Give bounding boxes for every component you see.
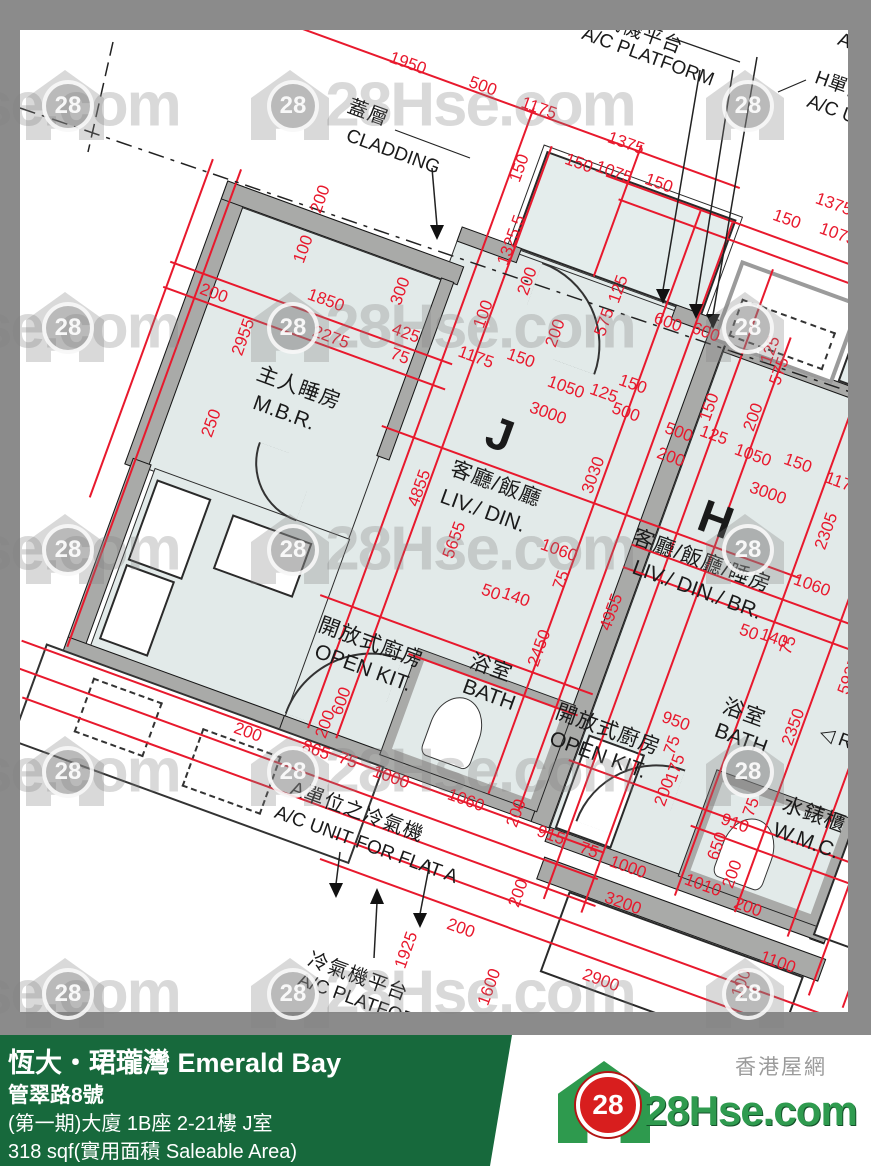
dim-label: 100 bbox=[290, 233, 316, 265]
floorplan-screenshot: 冷氣機平台A/C PLATFORM蓋層CLADDINGH單位A/C UNA/19… bbox=[0, 0, 871, 1166]
dim-label: 140 bbox=[500, 584, 532, 610]
dim-label: 150 bbox=[782, 450, 814, 476]
dim-label: 1950 bbox=[387, 49, 428, 78]
dim-label: 2305 bbox=[812, 510, 841, 551]
frame-bottom bbox=[0, 1012, 871, 1036]
dim-label: 3030 bbox=[579, 454, 608, 495]
dim-label: 200 bbox=[651, 776, 677, 808]
dim-label: 575 bbox=[591, 306, 617, 338]
dim-label: 1050 bbox=[732, 441, 773, 470]
dim-label: 950 bbox=[660, 708, 692, 734]
dim-label: 1325.5 bbox=[494, 213, 528, 268]
dim-label: 3000 bbox=[747, 479, 788, 508]
dim-label: 2900 bbox=[580, 966, 621, 995]
dim-label: 1060 bbox=[538, 536, 579, 565]
unit-letter: H bbox=[693, 492, 740, 547]
logo-28-badge: 28 bbox=[576, 1073, 640, 1137]
plan-labels: 冷氣機平台A/C PLATFORM蓋層CLADDINGH單位A/C UNA/19… bbox=[0, 0, 871, 1040]
logo-tagline: 香港屋網 bbox=[735, 1051, 827, 1081]
dim-label: 1010 bbox=[682, 871, 723, 900]
dim-label: 1060 bbox=[445, 786, 486, 815]
dim-label: 200 bbox=[740, 401, 766, 433]
dim-label: 150 bbox=[563, 150, 595, 176]
dim-label: 3200 bbox=[602, 889, 643, 918]
property-area: 318 sqf(實用面積 Saleable Area) bbox=[8, 1135, 297, 1164]
dim-label: 200 bbox=[445, 915, 477, 941]
dim-label: 200 bbox=[542, 317, 568, 349]
dim-label: 200 bbox=[307, 183, 333, 215]
dim-label: 865 bbox=[300, 737, 332, 763]
dim-label: 250 bbox=[198, 407, 224, 439]
frame-right bbox=[848, 0, 871, 1036]
footer-bar: 恆大・珺瓏灣 Emerald Bay 管翠路8號 (第一期)大廈 1B座 2-2… bbox=[0, 1035, 871, 1166]
site-logo: 28 28Hse.com 香港屋網 bbox=[540, 1035, 871, 1166]
dim-label: 125 bbox=[605, 273, 631, 305]
dim-label: 500 bbox=[610, 399, 642, 425]
dim-label: 425 bbox=[390, 320, 422, 346]
dim-label: 100 bbox=[470, 298, 496, 330]
dim-label: 200 bbox=[719, 858, 745, 890]
dim-label: 75 bbox=[388, 345, 412, 367]
annotation-label-en: CLADDING bbox=[344, 126, 443, 177]
logo-name: 28Hse.com bbox=[644, 1087, 857, 1135]
dim-label: 500 bbox=[663, 419, 695, 445]
dim-label: 5655 bbox=[440, 519, 469, 560]
annotation-label-zh: 蓋層 bbox=[345, 96, 391, 129]
dim-label: 3000 bbox=[527, 399, 568, 428]
dim-label: 1850 bbox=[305, 286, 346, 315]
dim-label: 200 bbox=[232, 719, 264, 745]
dim-label: 75 bbox=[336, 749, 360, 771]
dim-label: 4955 bbox=[597, 591, 626, 632]
dim-label: 200 bbox=[514, 265, 540, 297]
dim-label: 75 bbox=[777, 633, 799, 657]
dim-label: 915 bbox=[535, 822, 567, 848]
dim-label: 1100 bbox=[758, 948, 798, 976]
dim-label: 75 bbox=[550, 568, 572, 592]
dim-label: 200 bbox=[503, 797, 529, 829]
dim-label: 1175 bbox=[519, 94, 559, 122]
dim-label: 150 bbox=[617, 371, 649, 397]
dim-label: 150 bbox=[643, 170, 675, 196]
dim-label: 200 bbox=[732, 894, 764, 920]
property-address: 管翠路8號 bbox=[8, 1079, 104, 1109]
dim-label: 1925 bbox=[392, 929, 421, 970]
dim-label: 200 bbox=[505, 877, 531, 909]
dim-label: 1175 bbox=[456, 343, 496, 371]
unit-letter: J bbox=[480, 408, 520, 460]
dim-label: 200 bbox=[198, 280, 230, 306]
property-unit: (第一期)大廈 1B座 2-21樓 J室 bbox=[8, 1107, 272, 1136]
property-title: 恆大・珺瓏灣 Emerald Bay bbox=[8, 1041, 341, 1080]
dim-label: 2350 bbox=[779, 706, 808, 747]
dim-label: 4855 bbox=[405, 467, 434, 508]
dim-label: 125 bbox=[698, 422, 730, 448]
frame-top bbox=[0, 0, 871, 30]
dim-label: 1000 bbox=[370, 763, 411, 792]
dim-label: 600 bbox=[652, 309, 684, 335]
dim-label: 1060 bbox=[791, 571, 832, 600]
dim-label: 150 bbox=[506, 152, 532, 184]
dim-label: 200 bbox=[312, 708, 338, 740]
dim-label: 150 bbox=[505, 345, 537, 371]
dim-label: 2450 bbox=[525, 627, 554, 668]
dim-label: 75 bbox=[577, 839, 601, 861]
frame-left bbox=[0, 0, 20, 1036]
dim-label: 200 bbox=[655, 444, 687, 470]
dim-label: 300 bbox=[387, 275, 413, 307]
dim-label: 150 bbox=[696, 391, 722, 423]
dim-label: 500 bbox=[467, 73, 499, 99]
dim-label: 1375 bbox=[605, 129, 646, 158]
dim-label: 150 bbox=[771, 206, 803, 232]
dim-label: 1050 bbox=[545, 373, 586, 402]
dim-label: 100 bbox=[728, 967, 754, 999]
dim-label: 1600 bbox=[475, 966, 504, 1007]
dim-label: 2955 bbox=[229, 316, 258, 357]
dim-label: 1000 bbox=[607, 853, 648, 882]
dim-label: 600 bbox=[690, 319, 722, 345]
dim-label: 2275 bbox=[310, 323, 351, 352]
dim-label: 1075 bbox=[593, 158, 634, 187]
dim-label: 650 bbox=[704, 830, 730, 862]
